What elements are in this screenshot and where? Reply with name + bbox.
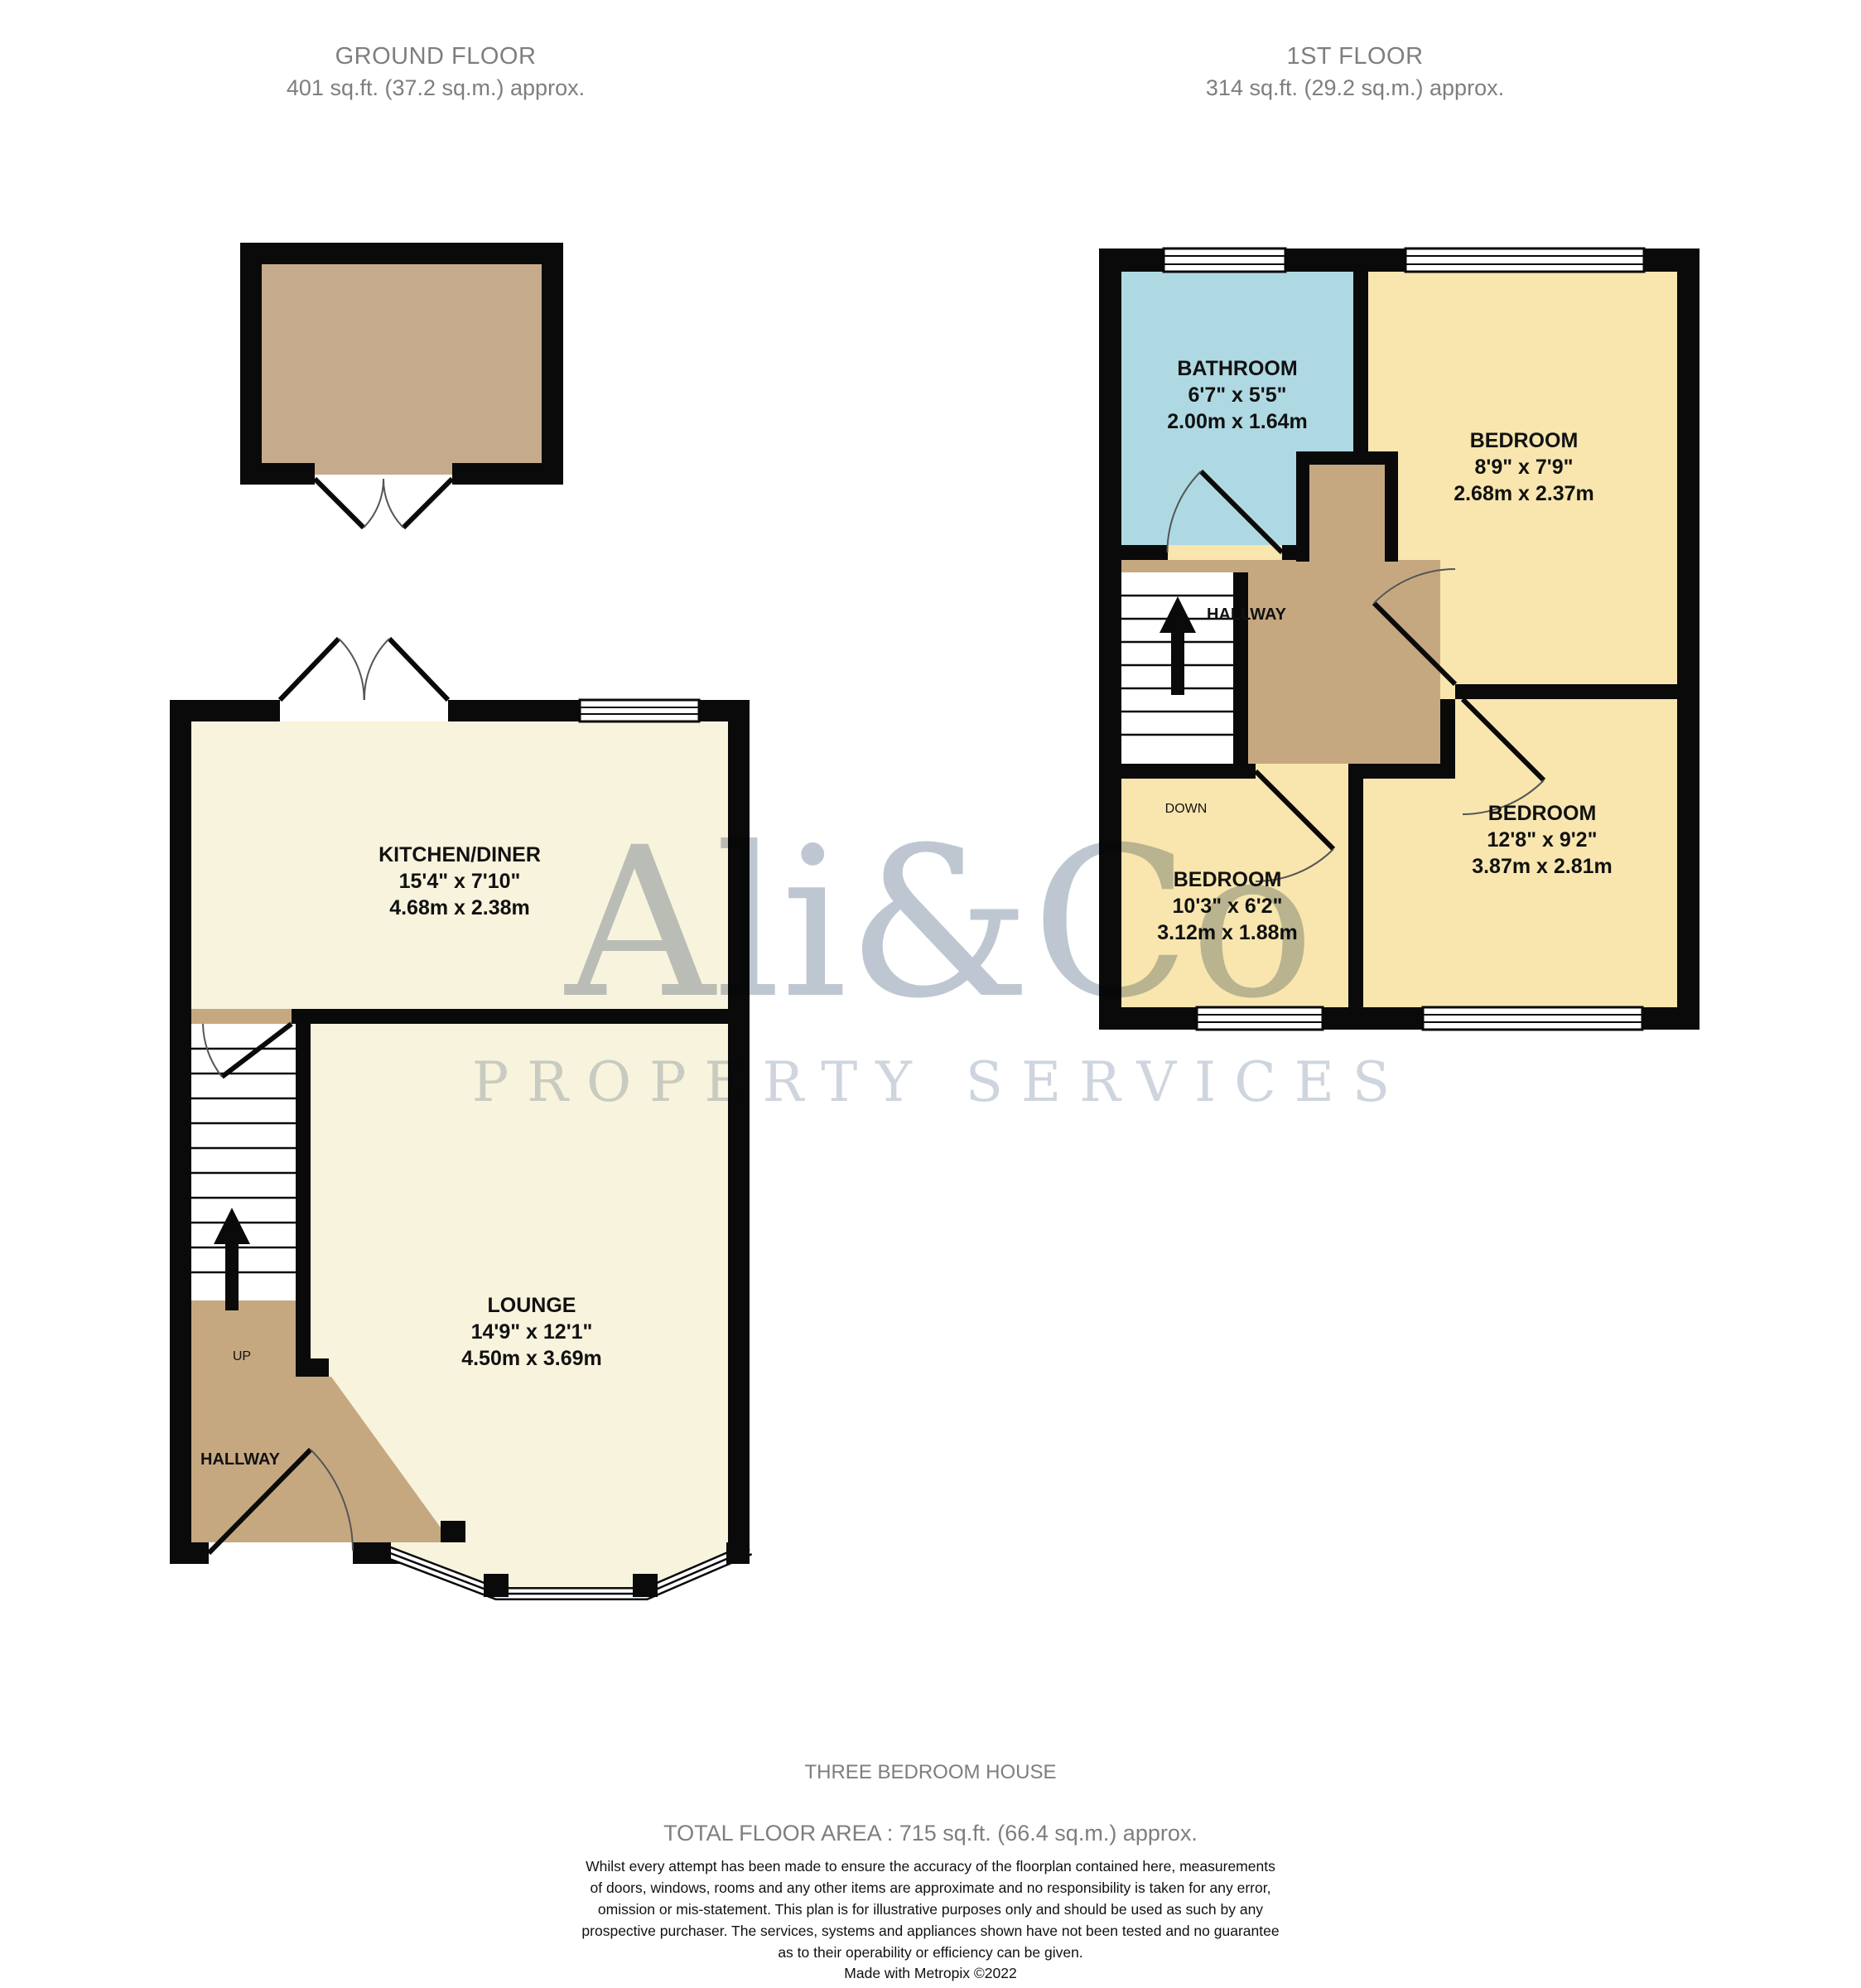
kitchen-metric: 4.68m x 2.38m [389,896,530,919]
closet [1296,451,1398,562]
disclaimer-line: Whilst every attempt has been made to en… [0,1855,1861,1877]
bedroom2-metric: 3.87m x 2.81m [1472,855,1613,878]
disclaimer-line: of doors, windows, rooms and any other i… [0,1877,1861,1899]
disclaimer-line: omission or mis-statement. This plan is … [0,1899,1861,1920]
garage-double-door [315,479,452,528]
disclaimer-line: as to their operability or efficiency ca… [0,1942,1861,1963]
bedroom1-imperial: 8'9" x 7'9" [1474,456,1573,479]
total-floor-area: TOTAL FLOOR AREA : 715 sq.ft. (66.4 sq.m… [0,1821,1861,1846]
bedroom2-imperial: 12'8" x 9'2" [1487,828,1598,852]
kitchen-window [580,700,699,721]
kitchen-imperial: 15'4" x 7'10" [399,870,521,893]
metropix-credit: Made with Metropix ©2022 [0,1965,1861,1982]
bathroom-window [1164,248,1285,272]
bedroom3-label: BEDROOM [1174,868,1282,891]
garage [240,243,563,528]
first-floor-plan: BATHROOM 6'7" x 5'5" 2.00m x 1.64m BEDRO… [1099,248,1699,1030]
garage-floor [262,264,542,463]
ground-floor-plan: KITCHEN/DINER 15'4" x 7'10" 4.68m x 2.38… [170,639,750,1597]
bedroom2-window [1423,1007,1642,1030]
down-label: DOWN [1165,802,1208,816]
bay-window [368,1542,750,1597]
first-hallway-label: HALLWAY [1207,606,1287,624]
bedroom2-label: BEDROOM [1488,802,1597,825]
floorplan-page: GROUND FLOOR 401 sq.ft. (37.2 sq.m.) app… [0,0,1861,1988]
lounge-label: LOUNGE [488,1294,576,1317]
kitchen-french-doors [280,639,448,700]
bathroom-imperial: 6'7" x 5'5" [1188,384,1286,407]
ground-hallway-label: HALLWAY [200,1450,281,1469]
lounge-metric: 4.50m x 3.69m [461,1347,602,1370]
bedroom3-imperial: 10'3" x 6'2" [1173,895,1283,918]
lounge-imperial: 14'9" x 12'1" [471,1320,593,1344]
bedroom3-window [1197,1007,1323,1030]
bathroom-metric: 2.00m x 1.64m [1167,410,1308,433]
kitchen-label: KITCHEN/DINER [378,843,541,866]
disclaimer: Whilst every attempt has been made to en… [0,1855,1861,1963]
bedroom1-metric: 2.68m x 2.37m [1454,482,1594,505]
bedroom3-metric: 3.12m x 1.88m [1157,921,1298,944]
bathroom-label: BATHROOM [1177,357,1297,380]
up-label: UP [233,1349,251,1363]
bedroom1-window [1405,248,1644,272]
property-type: THREE BEDROOM HOUSE [0,1761,1861,1784]
disclaimer-line: prospective purchaser. The services, sys… [0,1920,1861,1942]
floorplan-drawing: KITCHEN/DINER 15'4" x 7'10" 4.68m x 2.38… [0,0,1861,1988]
bedroom1-label: BEDROOM [1470,429,1579,452]
